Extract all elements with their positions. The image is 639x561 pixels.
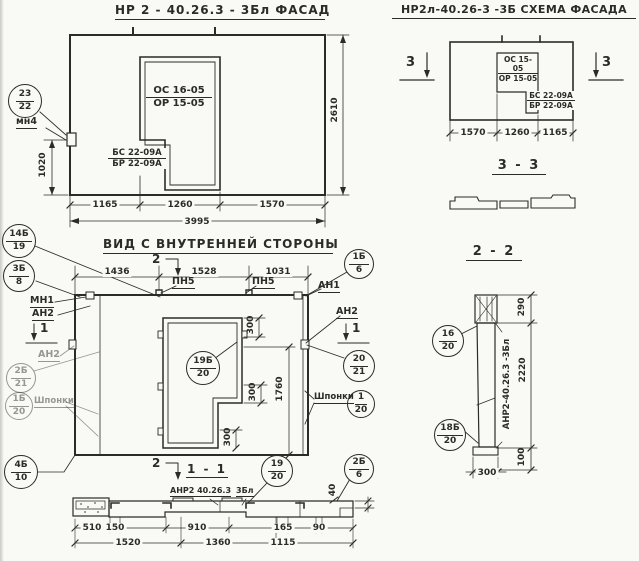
an2-label-left-lower: АН2 [38, 349, 60, 362]
dim-2610: 2610 [330, 93, 340, 127]
schema-cut-mark-left: 3 [406, 55, 415, 70]
section-1-1-profile [73, 479, 353, 517]
drawing-sheet: НР 2 - 40.26.3 - 3Бл ФАСАД НР2л-40.26-3 … [0, 0, 639, 561]
facade-window-mark-bottom: ОР 15-05 [146, 98, 212, 110]
s11-dim-1520: 1520 [113, 538, 142, 548]
an2-label-right: АН2 [336, 306, 358, 319]
schema-title: НР2л-40.26-3 -3Б СХЕМА ФАСАДА [392, 3, 636, 19]
facade-jamb-mark: БС 22-09А БР 22-09А [108, 148, 166, 169]
section-2-2-title: 2 - 2 [466, 244, 522, 261]
mn1-label: МН1 [30, 295, 54, 308]
s11-mark2-label: 3Бл [236, 486, 254, 497]
shponki-label-left: Шпонки [34, 396, 74, 408]
dim-1165: 1165 [90, 200, 119, 210]
facade-dimensions [44, 35, 349, 227]
callout-top: 3Б [9, 264, 28, 276]
facade-window-mark-top: ОС 16-05 [146, 85, 212, 98]
callout-18b-20: 18Б 20 [434, 419, 466, 451]
callout-2b-6: 2Б 6 [344, 454, 374, 484]
s22-mark-label: АНР2-40.26.3 -3Бл [502, 324, 512, 444]
callout-bottom: 6 [356, 265, 362, 276]
s22-dim-2220: 2220 [518, 353, 528, 387]
cut-2-mark-bottom: 2 [152, 456, 160, 470]
callout-bottom: 20 [444, 436, 457, 447]
facade-jamb-mark-bottom: БР 22-09А [108, 159, 166, 169]
dim-1020: 1020 [38, 148, 48, 182]
callout-top: 23 [16, 89, 35, 101]
callout-top: 1Б [349, 252, 368, 264]
callout-top: 19Б [190, 356, 215, 368]
callout-bottom: 20 [442, 342, 455, 353]
callout-16-20: 16 20 [432, 325, 464, 357]
callout-top: 4Б [11, 460, 30, 472]
schema-dim-1165: 1165 [540, 128, 569, 138]
facade-title: НР 2 - 40.26.3 - 3Бл ФАСАД [115, 3, 325, 20]
s11-mark-label: АНР2 40.26.3 [170, 486, 231, 497]
inner-dim-300-top: 300 [246, 313, 256, 337]
callout-bottom: 21 [15, 379, 28, 390]
callout-bottom: 22 [19, 102, 32, 113]
callout-top: 20 [350, 354, 369, 366]
facade-jamb-mark-top: БС 22-09А [108, 148, 166, 159]
callout-top: 19 [268, 459, 287, 471]
s11-dim-910: 910 [186, 523, 209, 533]
schema-window-mark-bottom: ОР 15-05 [498, 74, 538, 83]
shponki-label-right: Шпонки [314, 392, 354, 404]
s11-dim-510: 510 [81, 523, 104, 533]
s11-dim-1360: 1360 [203, 538, 232, 548]
callout-bottom: 10 [15, 473, 28, 484]
callout-bottom: 20 [271, 472, 284, 483]
section-2-2-profile [461, 295, 502, 455]
inner-dim-300-bottom: 300 [223, 425, 233, 449]
facade-window-mark: ОС 16-05 ОР 15-05 [146, 85, 212, 110]
schema-cut-mark-right: 3 [602, 55, 611, 70]
facade-panel-outline [40, 28, 325, 195]
callout-bottom: 6 [356, 470, 362, 481]
pn5-label-right: ПН5 [252, 276, 275, 289]
dim-3995: 3995 [182, 217, 211, 227]
schema-jamb-mark-bottom: БР 22-09А [527, 101, 575, 110]
callout-top: 1Б [9, 394, 28, 406]
schema-jamb-mark: БС 22-09А БР 22-09А [527, 91, 575, 110]
an1-label: АН1 [318, 280, 340, 293]
callout-1b-6: 1Б 6 [344, 249, 374, 279]
callout-bottom: 20 [355, 405, 368, 416]
schema-dim-1570: 1570 [458, 128, 487, 138]
callout-4b-10: 4Б 10 [4, 455, 38, 489]
schema-jamb-mark-top: БС 22-09А [527, 91, 575, 101]
s11-dim-90: 90 [311, 523, 328, 533]
callout-top: 18Б [437, 423, 462, 435]
section-3-3-title: 3 - 3 [492, 158, 546, 175]
mn4-label: мн4 [16, 116, 37, 129]
an2-label-left: АН2 [32, 308, 54, 321]
section-1-1-title: 1 - 1 [186, 462, 228, 478]
cut-2-mark-top: 2 [152, 252, 160, 266]
inner-dim-1760: 1760 [275, 372, 285, 406]
schema-window-mark-top: ОС 15-05 [498, 55, 538, 74]
callout-23-22: 23 22 [8, 84, 42, 118]
cut-1-mark-right: 1 [352, 321, 360, 335]
inner-dim-1436: 1436 [102, 267, 131, 277]
dim-1570: 1570 [257, 200, 286, 210]
s22-dim-100: 100 [517, 443, 527, 471]
callout-bottom: 19 [13, 242, 26, 253]
s11-dim-1115: 1115 [268, 538, 297, 548]
s11-dim-40: 40 [328, 480, 338, 500]
callout-top: 16 [439, 329, 458, 341]
callout-top: 14Б [6, 229, 31, 241]
callout-2b-21: 2Б 21 [6, 363, 36, 393]
section-3-3-profile [450, 195, 575, 209]
callout-top: 2Б [349, 457, 368, 469]
inner-view-title: ВИД С ВНУТРЕННЕЙ СТОРОНЫ [103, 237, 333, 254]
callout-20-21: 20 21 [343, 350, 375, 382]
dim-1260: 1260 [165, 200, 194, 210]
inner-dim-300-mid: 300 [248, 380, 258, 404]
callout-bottom: 20 [197, 369, 210, 380]
callout-19b-20: 19Б 20 [186, 351, 220, 385]
s22-dim-300: 300 [476, 468, 499, 478]
pn5-label-left: ПН5 [172, 276, 195, 289]
callout-3b-8: 3Б 8 [3, 260, 35, 292]
callout-bottom: 8 [16, 277, 22, 288]
schema-dim-1260: 1260 [502, 128, 531, 138]
callout-19-20: 19 20 [261, 455, 293, 487]
cut-1-mark-left: 1 [40, 321, 48, 335]
callout-bottom: 20 [13, 407, 26, 418]
callout-bottom: 21 [353, 367, 366, 378]
s11-dim-165: 165 [272, 523, 295, 533]
callout-1b-20: 1Б 20 [5, 392, 33, 420]
callout-top: 2Б [11, 366, 30, 378]
s22-dim-290: 290 [517, 293, 527, 321]
s11-dim-150: 150 [104, 523, 127, 533]
schema-window-mark: ОС 15-05 ОР 15-05 [498, 55, 538, 83]
callout-top: 1 [355, 392, 367, 404]
callout-14b-19: 14Б 19 [2, 224, 36, 258]
